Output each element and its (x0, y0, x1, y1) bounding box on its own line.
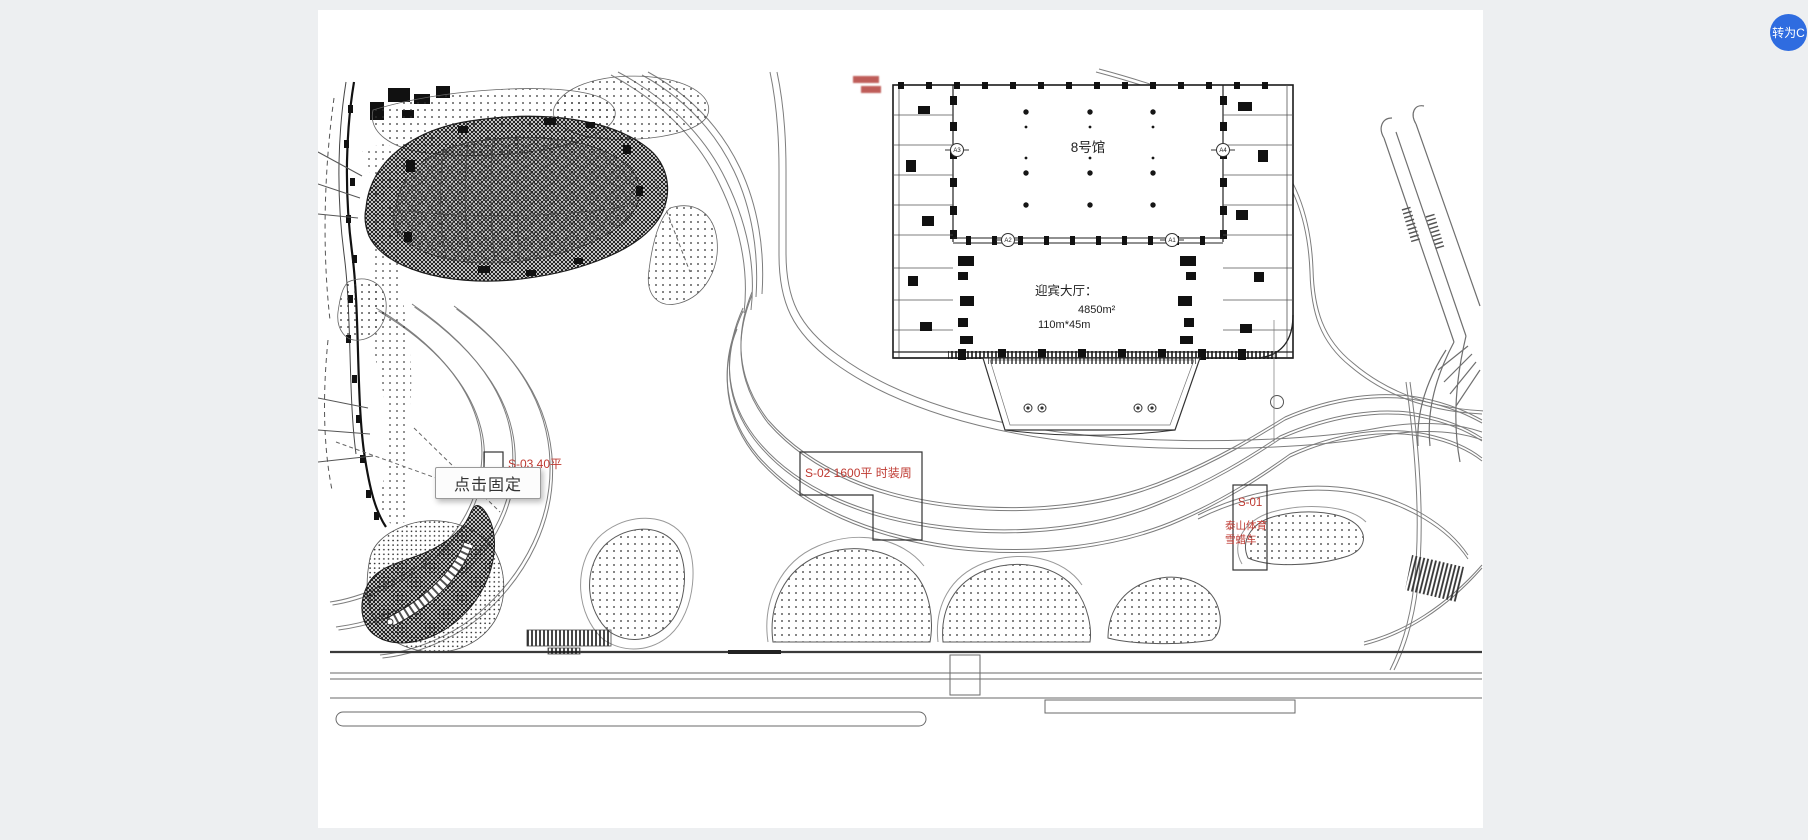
lobby-title: 迎宾大厅： (1035, 283, 1098, 298)
site-plan-drawing: 8号馆 A3 A4 A2 A1 (318, 10, 1483, 828)
clipped-red-label (853, 76, 881, 93)
booth-s01-label: S-01 (1238, 497, 1262, 509)
lobby-dimensions: 110m*45m (1038, 319, 1090, 331)
entrance-canopy (983, 358, 1200, 435)
lobby-area: 4850m² (1078, 304, 1116, 316)
site-plan-canvas[interactable]: 8号馆 A3 A4 A2 A1 (318, 10, 1483, 828)
booth-s02-label: S-02 1600平 时装周 (805, 466, 912, 480)
pin-tooltip[interactable]: 点击固定 (435, 467, 541, 499)
crescent-garden (362, 505, 504, 652)
axis-bubble-label: A3 (953, 148, 961, 154)
convert-to-cad-button[interactable]: 转为C (1770, 14, 1807, 51)
booth-s01-tenant: 泰山体育 (1225, 519, 1267, 532)
axis-bubble-label: A2 (1004, 238, 1012, 244)
crosswalk-right (1405, 555, 1464, 602)
pin-tooltip-label: 点击固定 (454, 471, 522, 495)
bottom-roads (330, 630, 1482, 726)
axis-bubble-label: A4 (1219, 148, 1227, 154)
app-viewport: 8号馆 A3 A4 A2 A1 (0, 0, 1808, 840)
hall-label: 8号馆 (1071, 140, 1106, 155)
axis-bubble-label: A1 (1168, 238, 1176, 244)
booth-s01-tenant2: 雪蜡车 (1225, 533, 1257, 546)
exhibition-building: 8号馆 A3 A4 A2 A1 (893, 82, 1293, 442)
right-edge-ramps (1381, 106, 1480, 602)
